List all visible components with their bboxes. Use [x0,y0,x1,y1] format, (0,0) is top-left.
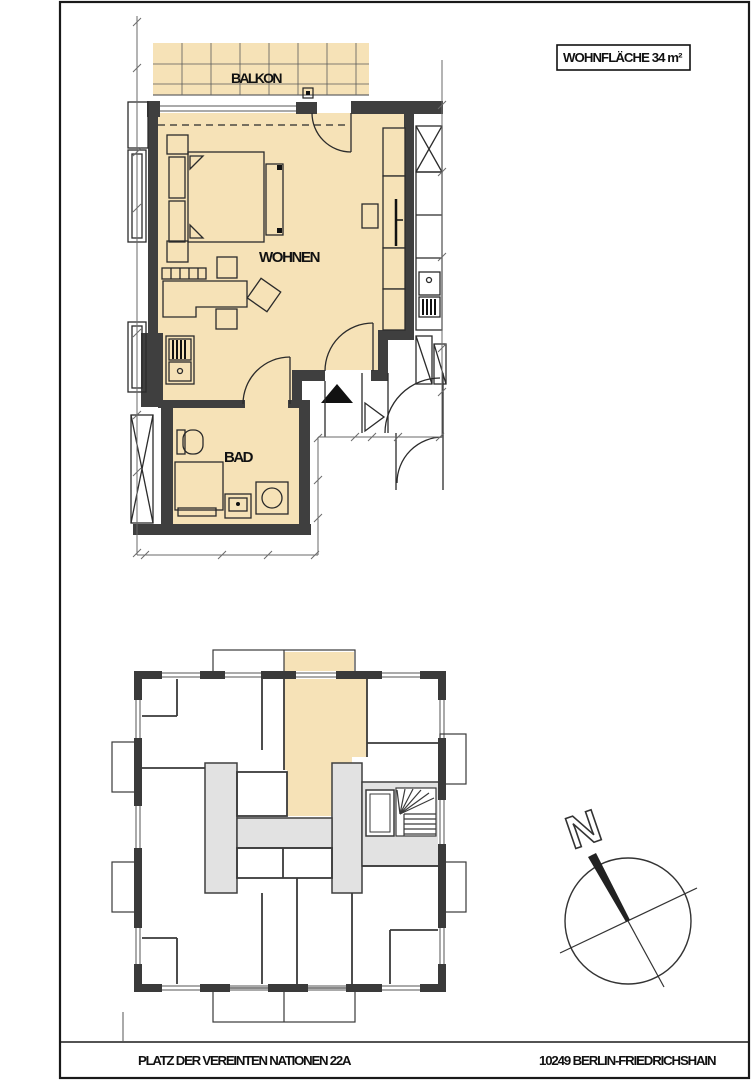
room-label-wohnen: WOHNEN [259,249,321,266]
balcony-region: BALKON [153,43,369,98]
building-overview-plan [112,650,466,1022]
footer-title-block: PLATZ DER VEREINTEN NATIONEN 22A 10249 B… [138,1053,717,1068]
north-label: N [559,799,607,859]
entry-door-swing [385,378,440,433]
neighbor-sink [419,272,440,295]
entrance [321,373,440,437]
neighbor-door-swing [397,437,443,483]
living-window-band [160,106,296,111]
apartment-floor [158,113,405,530]
room-label-bad: BAD [224,449,254,466]
footer-address: PLATZ DER VEREINTEN NATIONEN 22A [138,1053,352,1068]
main-floor-plan: BALKON [128,16,446,559]
area-label: WOHNFLÄCHE 34 m² [563,50,683,65]
room-label-balkon: BALKON [231,70,283,86]
north-compass: N [559,799,697,987]
entrance-marker [321,384,353,403]
entry-door-symbol [365,403,384,431]
staircase [366,788,436,836]
north-needle [588,853,630,922]
floor-plan-sheet: WOHNFLÄCHE 34 m² BALKON [0,0,755,1080]
neighbor-kitchen-counter [416,172,442,330]
footer-city: 10249 BERLIN-FRIEDRICHSHAIN [539,1053,717,1068]
wardrobe-column [383,128,405,330]
area-label-box: WOHNFLÄCHE 34 m² [557,45,690,70]
